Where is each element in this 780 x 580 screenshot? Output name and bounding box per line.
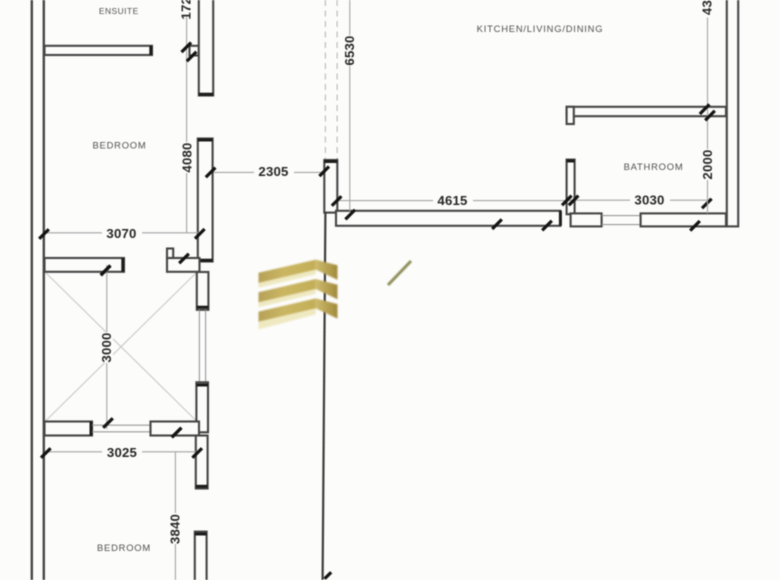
svg-text:ENSUITE: ENSUITE xyxy=(99,6,139,16)
svg-text:3000: 3000 xyxy=(99,332,114,362)
svg-text:4080: 4080 xyxy=(180,142,195,172)
svg-text:4615: 4615 xyxy=(437,193,467,208)
svg-text:4365: 4365 xyxy=(700,0,715,15)
svg-text:3070: 3070 xyxy=(106,226,136,241)
svg-text:2305: 2305 xyxy=(258,164,288,179)
svg-text:BEDROOM: BEDROOM xyxy=(92,139,146,150)
svg-text:1725: 1725 xyxy=(179,0,194,20)
svg-text:BEDROOM: BEDROOM xyxy=(97,542,151,553)
svg-text:6530: 6530 xyxy=(342,35,357,65)
svg-text:3025: 3025 xyxy=(107,445,137,460)
svg-text:3030: 3030 xyxy=(634,193,664,208)
svg-text:2000: 2000 xyxy=(700,149,715,179)
svg-text:BATHROOM: BATHROOM xyxy=(624,161,684,172)
svg-text:KITCHEN/LIVING/DINING: KITCHEN/LIVING/DINING xyxy=(477,23,604,34)
svg-text:3840: 3840 xyxy=(167,514,182,544)
